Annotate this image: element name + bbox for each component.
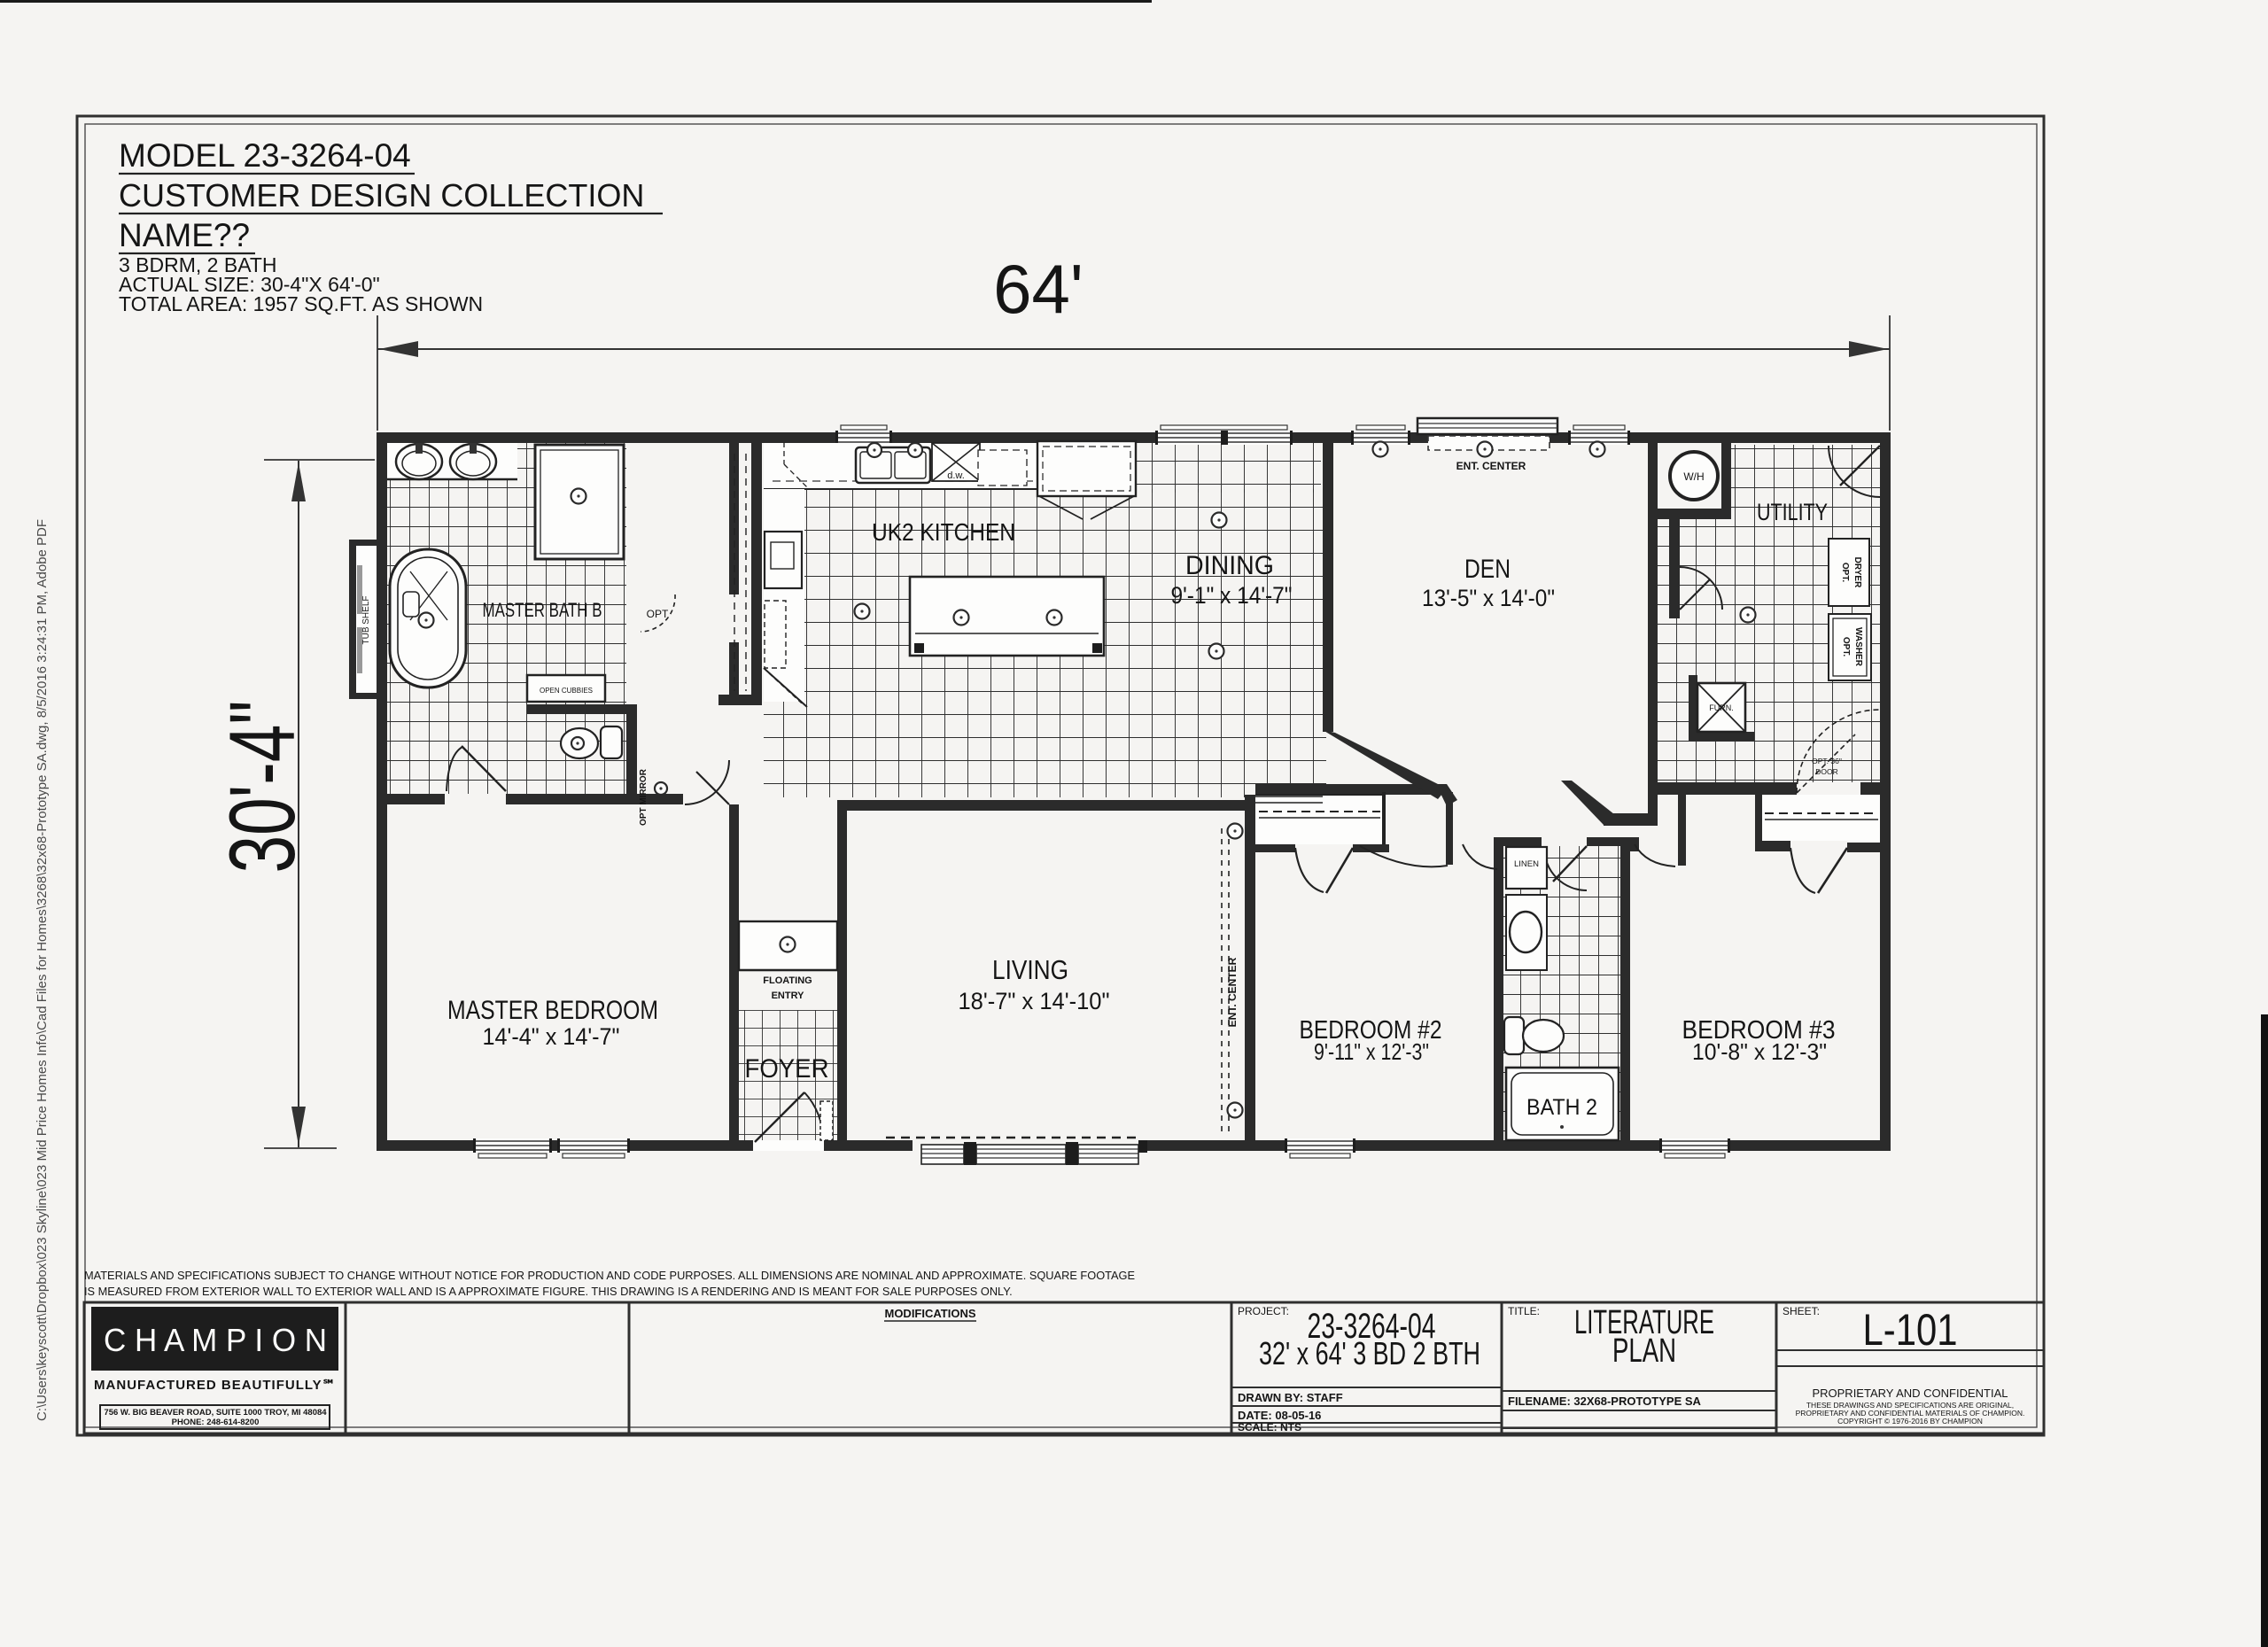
svg-text:64': 64'	[993, 250, 1084, 328]
svg-text:DINING: DINING	[1185, 551, 1274, 580]
svg-text:TITLE:: TITLE:	[1508, 1305, 1540, 1317]
svg-text:MATERIALS AND SPECIFICATIONS S: MATERIALS AND SPECIFICATIONS SUBJECT TO …	[84, 1269, 1135, 1282]
svg-text:DOOR: DOOR	[1815, 767, 1838, 776]
svg-text:DRAWN BY: STAFF: DRAWN BY: STAFF	[1238, 1391, 1343, 1404]
svg-text:CUSTOMER DESIGN COLLECTION: CUSTOMER DESIGN COLLECTION	[119, 177, 644, 214]
svg-text:W/H: W/H	[1683, 470, 1704, 483]
svg-text:FURN.: FURN.	[1709, 703, 1734, 712]
svg-text:32' x 64' 3 BD 2 BTH: 32' x 64' 3 BD 2 BTH	[1259, 1335, 1480, 1371]
svg-text:OPT: OPT	[647, 608, 669, 620]
svg-text:OPT.: OPT.	[1840, 563, 1850, 582]
svg-text:13'-5" x 14'-0": 13'-5" x 14'-0"	[1422, 585, 1555, 611]
svg-text:NAME??: NAME??	[119, 217, 250, 253]
svg-text:MODIFICATIONS: MODIFICATIONS	[884, 1307, 975, 1320]
svg-text:FILENAME: 32X68-PROTOTYPE SA: FILENAME: 32X68-PROTOTYPE SA	[1508, 1395, 1702, 1408]
svg-text:IS MEASURED FROM EXTERIOR WALL: IS MEASURED FROM EXTERIOR WALL TO EXTERI…	[84, 1285, 1013, 1298]
svg-text:d.w.: d.w.	[947, 470, 965, 481]
svg-text:30'-4": 30'-4"	[211, 701, 315, 874]
svg-text:10'-8" x 12'-3": 10'-8" x 12'-3"	[1692, 1038, 1827, 1065]
svg-text:MODEL 23-3264-04: MODEL 23-3264-04	[119, 137, 411, 174]
svg-text:DEN: DEN	[1464, 555, 1511, 584]
svg-text:C:\Users\keyscott\Dropbox\023: C:\Users\keyscott\Dropbox\023 Skyline\02…	[35, 519, 50, 1421]
svg-text:WASHER: WASHER	[1853, 627, 1863, 667]
svg-text:TUB SHELF: TUB SHELF	[361, 595, 371, 644]
svg-text:UK2 KITCHEN: UK2 KITCHEN	[872, 518, 1015, 546]
svg-text:756 W. BIG BEAVER ROAD, SUITE: 756 W. BIG BEAVER ROAD, SUITE 1000 TROY,…	[104, 1408, 327, 1418]
svg-text:TOTAL AREA: 1957 SQ.FT. AS SH: TOTAL AREA: 1957 SQ.FT. AS SHOWN	[119, 292, 483, 315]
svg-text:UTILITY: UTILITY	[1757, 499, 1828, 525]
svg-text:14'-4" x 14'-7": 14'-4" x 14'-7"	[483, 1023, 620, 1050]
svg-text:LIVING: LIVING	[992, 954, 1068, 985]
svg-text:BATH 2: BATH 2	[1526, 1095, 1597, 1120]
svg-text:COPYRIGHT © 1976-2016 BY CHAMP: COPYRIGHT © 1976-2016 BY CHAMPION	[1837, 1417, 1983, 1426]
svg-text:PROJECT:: PROJECT:	[1238, 1305, 1289, 1317]
svg-text:DRYER: DRYER	[1852, 557, 1862, 588]
svg-text:SHEET:: SHEET:	[1783, 1305, 1820, 1317]
svg-text:OPT MIRROR: OPT MIRROR	[639, 768, 649, 826]
svg-text:9'-11" x 12'-3": 9'-11" x 12'-3"	[1314, 1038, 1429, 1065]
svg-text:MASTER BATH B: MASTER BATH B	[483, 599, 602, 621]
svg-text:PHONE: 248-614-8200: PHONE: 248-614-8200	[172, 1418, 260, 1427]
svg-text:ENTRY: ENTRY	[772, 991, 805, 1001]
svg-text:18'-7" x 14'-10": 18'-7" x 14'-10"	[959, 988, 1110, 1014]
svg-text:FOYER: FOYER	[745, 1054, 829, 1084]
svg-text:L-101: L-101	[1863, 1305, 1958, 1355]
svg-text:9'-1" x 14'-7": 9'-1" x 14'-7"	[1171, 582, 1293, 609]
svg-text:OPT. 36": OPT. 36"	[1812, 757, 1842, 765]
svg-text:PLAN: PLAN	[1612, 1332, 1676, 1370]
svg-text:LINEN: LINEN	[1514, 859, 1539, 869]
svg-text:SCALE: NTS: SCALE: NTS	[1238, 1421, 1301, 1433]
svg-text:ENT. CENTER: ENT. CENTER	[1226, 957, 1239, 1027]
svg-text:ENT. CENTER: ENT. CENTER	[1456, 460, 1526, 472]
svg-text:PROPRIETARY AND CONFIDENTIAL: PROPRIETARY AND CONFIDENTIAL	[1812, 1387, 2008, 1400]
svg-text:FLOATING: FLOATING	[763, 975, 812, 986]
svg-text:C H A M P I O N: C H A M P I O N	[104, 1322, 327, 1358]
svg-text:MANUFACTURED BEAUTIFULLY℠: MANUFACTURED BEAUTIFULLY℠	[94, 1378, 337, 1393]
svg-text:OPT.: OPT.	[1841, 637, 1851, 656]
svg-text:MASTER BEDROOM: MASTER BEDROOM	[447, 996, 658, 1025]
svg-text:OPEN CUBBIES: OPEN CUBBIES	[540, 687, 593, 695]
svg-text:DATE: 08-05-16: DATE: 08-05-16	[1238, 1409, 1321, 1422]
